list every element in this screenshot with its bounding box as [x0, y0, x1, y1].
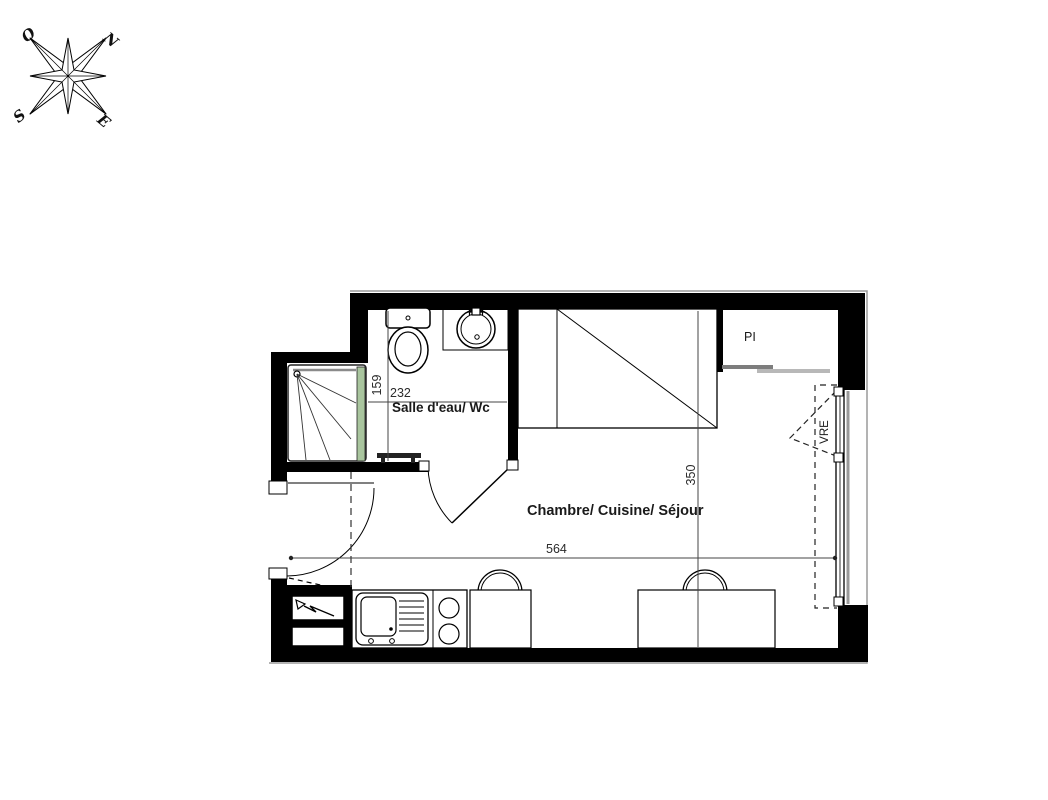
- bed: [518, 309, 717, 428]
- towel-radiator: [377, 453, 421, 463]
- entry-door: [287, 483, 374, 592]
- main-room-label: Chambre/ Cuisine/ Séjour: [527, 503, 703, 519]
- closet-label: PI: [744, 330, 756, 344]
- dim-564-label: 564: [546, 542, 567, 556]
- window-shutter-label: VRE: [819, 415, 831, 449]
- closet-sliding-doors: [722, 365, 830, 373]
- shower: [288, 365, 366, 461]
- floor-plan-page: { "compass": { "north": "N", "east": "E"…: [0, 0, 1048, 800]
- dim-232-label: 232: [390, 386, 411, 400]
- bathroom-label: Salle d'eau/ Wc: [392, 400, 490, 415]
- chair-2-and-table: [638, 570, 775, 648]
- shower-glass-panel: [357, 367, 365, 461]
- floor-plan-drawing: [0, 0, 1048, 800]
- dim-350-label: 350: [684, 460, 698, 490]
- faucet-icon: [467, 308, 485, 315]
- dim-159-label: 159: [370, 370, 384, 400]
- washbasin: [443, 307, 508, 350]
- kitchen-counter: [352, 590, 467, 648]
- chair-1: [470, 570, 531, 648]
- bathroom-door: [428, 467, 509, 523]
- toilet: [386, 308, 430, 373]
- dining-table: [638, 590, 775, 648]
